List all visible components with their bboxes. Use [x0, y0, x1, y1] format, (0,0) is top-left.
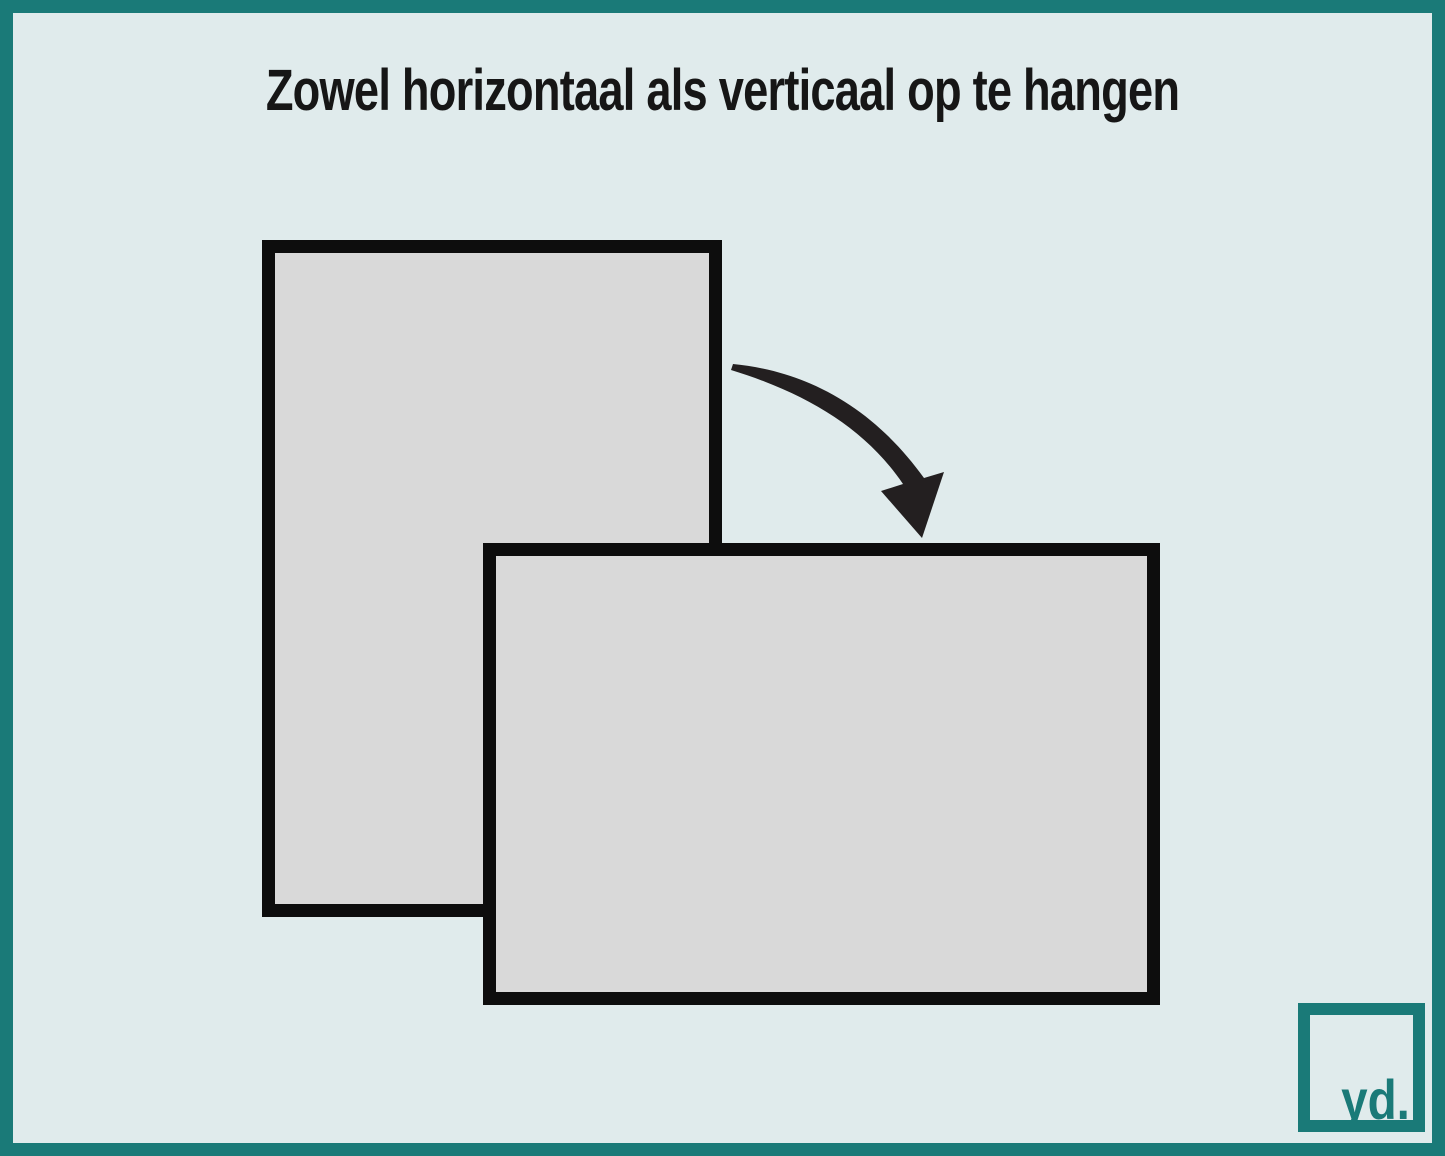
landscape-frame-illustration — [483, 543, 1160, 1005]
poster-canvas: Zowel horizontaal als verticaal op te ha… — [0, 0, 1445, 1156]
brand-logo-text: yd. — [1341, 1072, 1410, 1128]
page-title: Zowel horizontaal als verticaal op te ha… — [13, 57, 1432, 124]
brand-logo: yd. — [1298, 1003, 1425, 1132]
rotate-arrow-path — [731, 364, 944, 538]
page-title-text: Zowel horizontaal als verticaal op te ha… — [266, 57, 1179, 124]
